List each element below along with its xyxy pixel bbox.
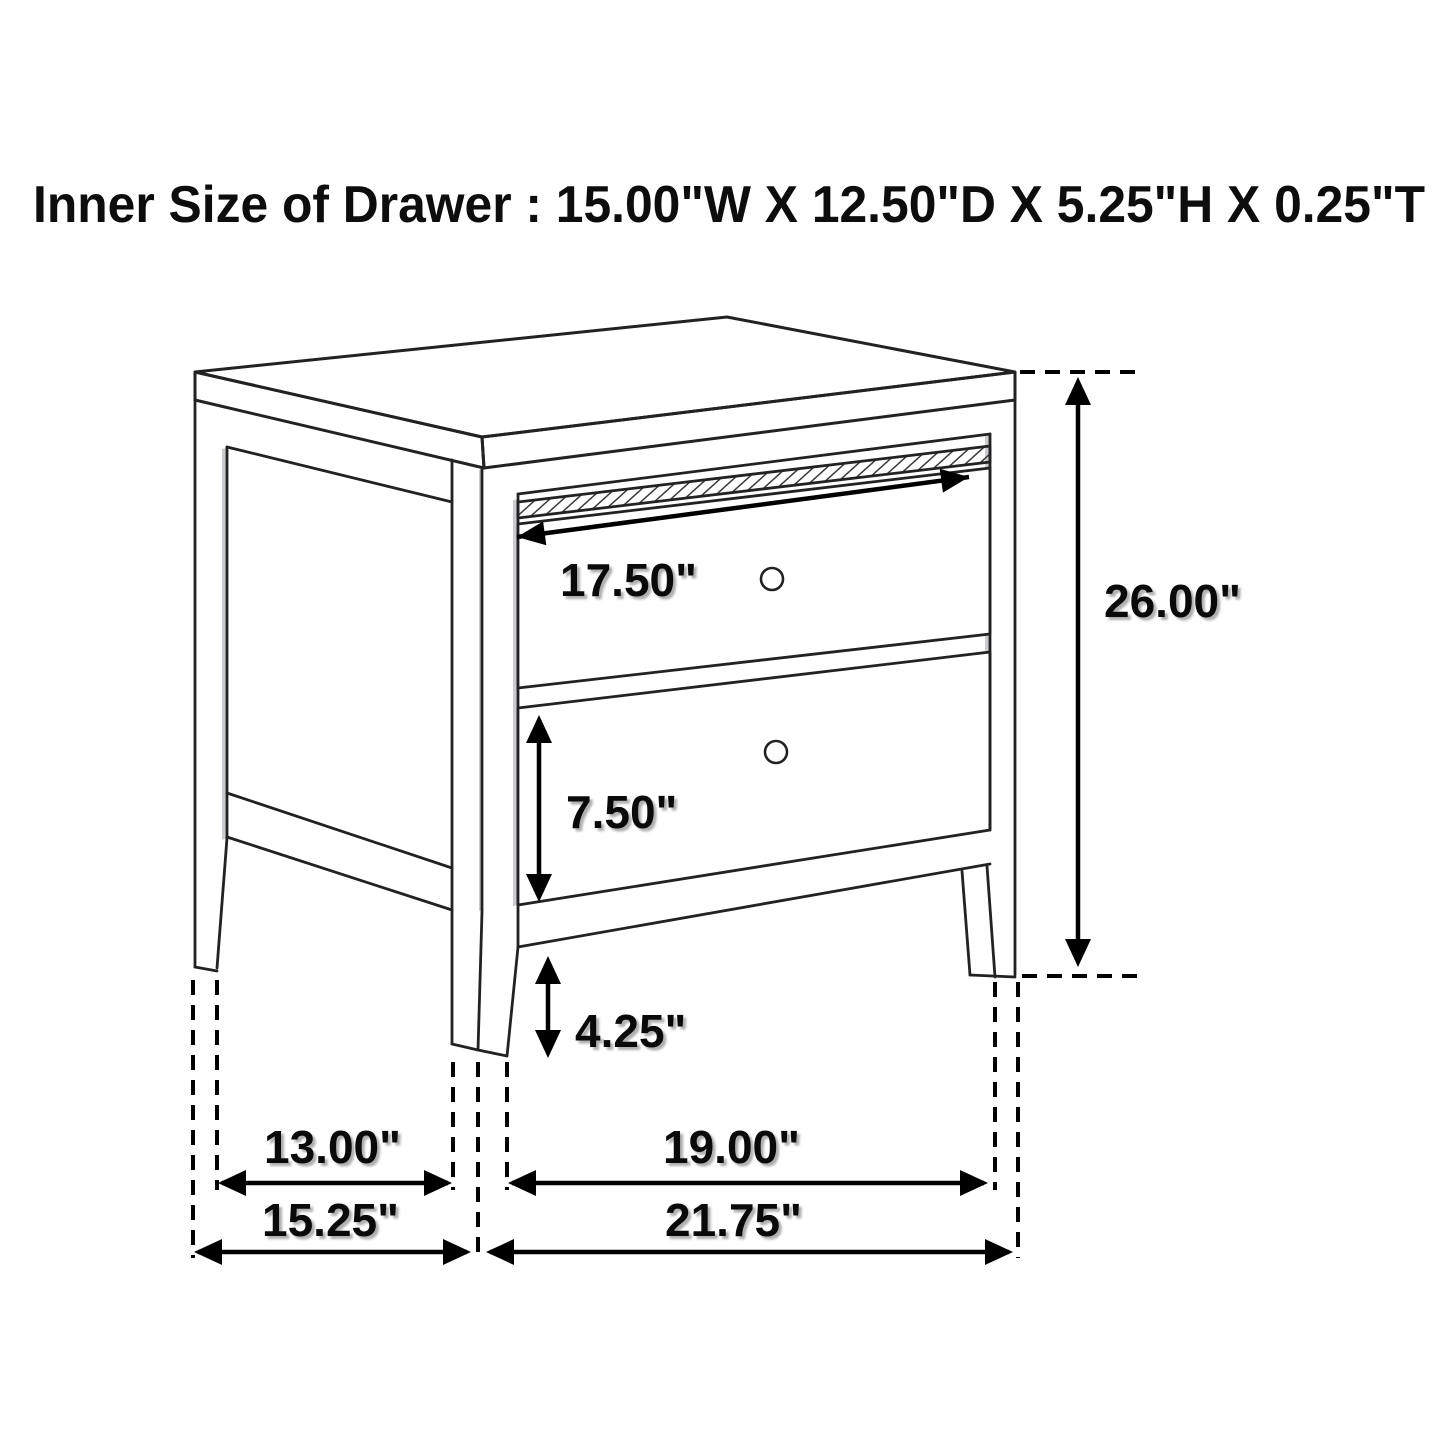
nightstand [195, 317, 1015, 1056]
arrowhead-right [960, 1170, 988, 1196]
top-panel-top-face [195, 317, 1015, 437]
dim-label-overall-height: 26.00" [1104, 575, 1241, 627]
dim-label-overall-depth: 15.25" [262, 1194, 399, 1246]
arrowhead-left [218, 1170, 246, 1196]
diagram-title: Inner Size of Drawer : 15.00"W X 12.50"D… [33, 176, 1425, 234]
arrowhead-down [1065, 939, 1091, 967]
side-rail-top-edge [227, 793, 452, 868]
dim-label-side-leg-spacing: 13.00" [264, 1121, 401, 1173]
dimension-diagram: Inner Size of Drawer : 15.00"W X 12.50"D… [0, 0, 1445, 1445]
bottom-drawer-face [518, 652, 990, 905]
front-right-foot-bottom [970, 975, 1015, 977]
arrowhead-right [985, 1239, 1013, 1265]
dim-side-leg-spacing: 13.00" [218, 1121, 452, 1196]
dim-overall-height: 26.00" [1065, 377, 1241, 967]
dim-front-leg-spacing: 19.00" [508, 1121, 988, 1196]
front-face [518, 434, 990, 947]
dim-leg-height: 4.25" [535, 956, 686, 1058]
dim-overall-depth: 15.25" [194, 1194, 471, 1265]
arrowhead-down [535, 1030, 561, 1058]
front-left-leg [452, 460, 518, 1056]
arrowhead-up [1065, 377, 1091, 405]
arrowhead-right [424, 1170, 452, 1196]
arrowhead-left [486, 1239, 514, 1265]
left-side-panel [195, 400, 452, 971]
front-right-leg-side-taper [962, 871, 970, 975]
dim-label-overall-width: 21.75" [665, 1194, 802, 1246]
arrowhead-up [535, 956, 561, 984]
nightstand-drawing-svg: Inner Size of Drawer : 15.00"W X 12.50"D… [0, 0, 1445, 1445]
arrowhead-right [443, 1239, 471, 1265]
dim-label-bottom-drawer-height: 7.50" [566, 786, 677, 838]
dim-label-drawer-face-width: 17.50" [560, 554, 697, 606]
front-right-leg-front-taper [987, 866, 995, 977]
top-drawer-knob [761, 568, 783, 590]
back-leg-taper [217, 838, 227, 968]
dim-overall-width: 21.75" [486, 1194, 1013, 1265]
side-panel-top-edge [227, 447, 452, 502]
arrowhead-left [508, 1170, 536, 1196]
bottom-drawer-knob [765, 741, 787, 763]
arrowhead-left [194, 1239, 222, 1265]
top-panel-left-edge [195, 372, 484, 468]
dim-label-leg-height: 4.25" [575, 1005, 686, 1057]
back-foot-bottom [195, 967, 217, 971]
dim-label-front-leg-spacing: 19.00" [663, 1121, 800, 1173]
side-rail-bottom-edge [227, 837, 452, 910]
